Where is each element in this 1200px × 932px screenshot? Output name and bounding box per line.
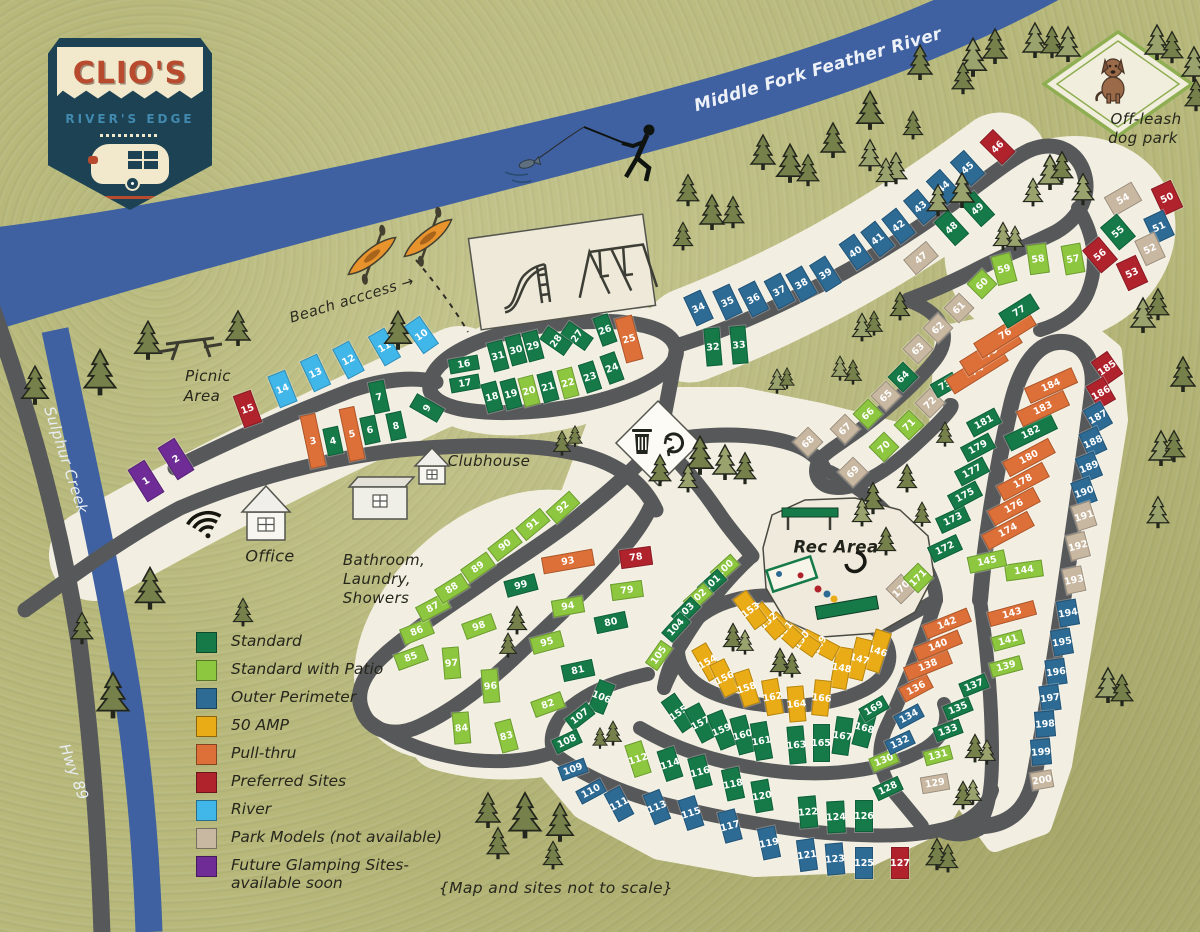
- campground-map: 1234567891011121314151617181920212223242…: [0, 0, 1200, 932]
- legend-item-park-models-not-available-: Park Models (not available): [196, 828, 442, 849]
- legend-label: Future Glamping Sites-available soon: [231, 856, 409, 893]
- dog-park: [1044, 32, 1192, 136]
- legend-swatch: [196, 744, 217, 765]
- legend-label: Park Models (not available): [231, 828, 442, 847]
- legend-item-future-glamping-sites-: Future Glamping Sites-available soon: [196, 856, 442, 893]
- legend-label: River: [231, 800, 271, 819]
- legend: StandardStandard with PatioOuter Perimet…: [196, 632, 442, 900]
- legend-item-outer-perimeter: Outer Perimeter: [196, 688, 442, 709]
- legend-swatch: [196, 716, 217, 737]
- legend-item-river: River: [196, 800, 442, 821]
- rec-area: [763, 498, 934, 637]
- camper-trailer-icon: [91, 144, 169, 184]
- legend-label: Preferred Sites: [231, 772, 346, 791]
- legend-label: Pull-thru: [231, 744, 296, 763]
- logo-subtitle: RIVER'S EDGE: [48, 112, 212, 126]
- legend-item-pull-thru: Pull-thru: [196, 744, 442, 765]
- legend-item-standard: Standard: [196, 632, 442, 653]
- road-hwy-89: [0, 308, 102, 932]
- legend-label: Standard with Patio: [231, 660, 383, 679]
- legend-swatch: [196, 688, 217, 709]
- legend-item-50-amp: 50 AMP: [196, 716, 442, 737]
- legend-swatch: [196, 632, 217, 653]
- legend-swatch: [196, 856, 217, 877]
- legend-label: Outer Perimeter: [231, 688, 356, 707]
- legend-label: Standard: [231, 632, 302, 651]
- legend-swatch: [196, 660, 217, 681]
- legend-swatch: [196, 800, 217, 821]
- logo-title: CLIO'S: [48, 56, 212, 91]
- logo-divider-dots: [100, 134, 160, 137]
- legend-swatch: [196, 828, 217, 849]
- legend-swatch: [196, 772, 217, 793]
- legend-item-standard-with-patio: Standard with Patio: [196, 660, 442, 681]
- legend-item-preferred-sites: Preferred Sites: [196, 772, 442, 793]
- legend-label: 50 AMP: [231, 716, 289, 735]
- beach-access-path: [416, 260, 468, 332]
